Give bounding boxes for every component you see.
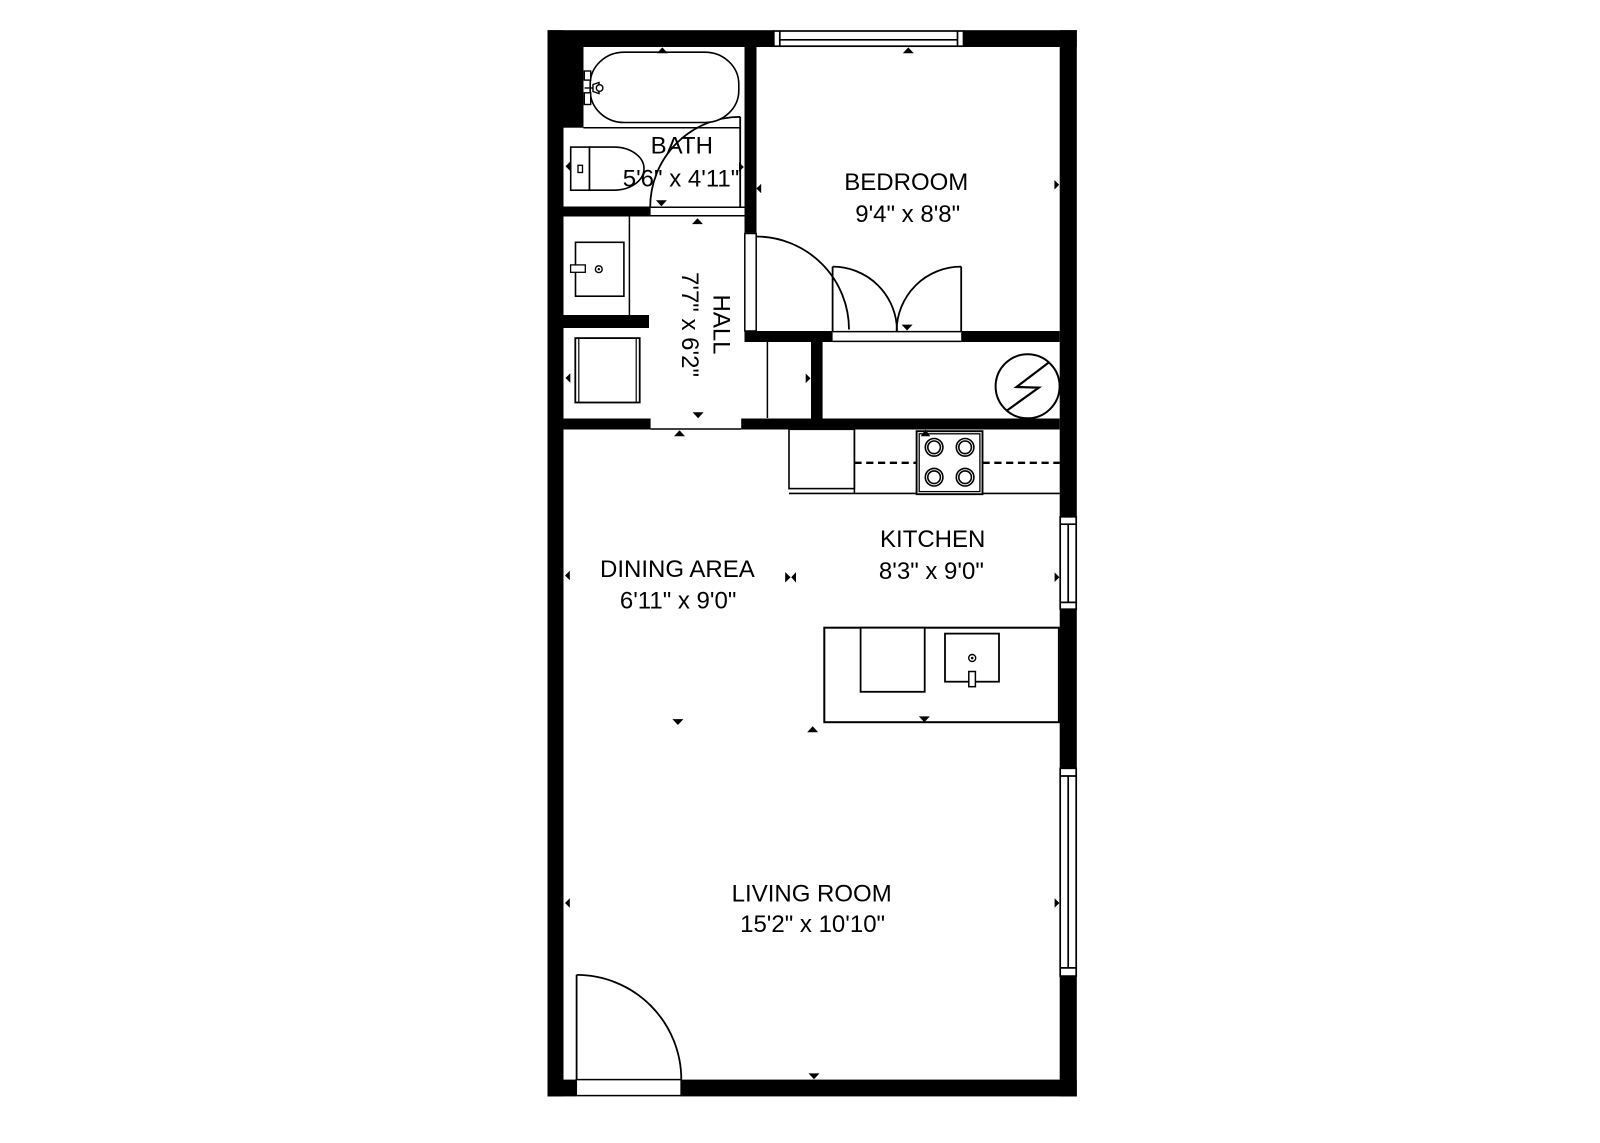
svg-text:15'2" x 10'10": 15'2" x 10'10" — [740, 911, 885, 938]
svg-text:5'6" x 4'11": 5'6" x 4'11" — [623, 166, 740, 193]
svg-text:DINING AREA: DINING AREA — [600, 556, 755, 583]
svg-text:BEDROOM: BEDROOM — [844, 169, 968, 196]
svg-text:LIVING ROOM: LIVING ROOM — [732, 880, 892, 907]
svg-text:BATH: BATH — [651, 132, 713, 159]
svg-text:HALL: HALL — [707, 294, 734, 354]
svg-text:9'4" x 8'8": 9'4" x 8'8" — [855, 201, 960, 228]
svg-text:KITCHEN: KITCHEN — [880, 526, 985, 553]
svg-text:6'11" x 9'0": 6'11" x 9'0" — [620, 588, 737, 615]
svg-text:7'7" x 6'2": 7'7" x 6'2" — [676, 272, 703, 377]
svg-text:8'3" x 9'0": 8'3" x 9'0" — [879, 558, 984, 585]
